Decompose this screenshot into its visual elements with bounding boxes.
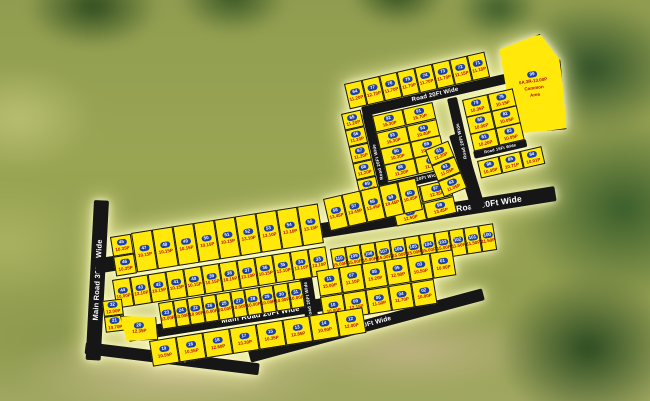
plot: 1410.90P	[309, 311, 340, 341]
plot-size-label: 10.00P	[232, 303, 247, 310]
plot-size-label: 10.15P	[179, 244, 194, 251]
plot: 1910.55P	[149, 337, 180, 367]
plot: 0110.00P	[430, 249, 457, 278]
plot-size-label: 10.15P	[187, 281, 202, 288]
plot: 2012.35P	[120, 313, 158, 343]
plot-size-label: 10.00P	[203, 308, 218, 315]
plot: 1312.85P	[282, 316, 313, 346]
plot-size-label: 13.00P	[160, 315, 175, 322]
plot-size-label: 13.10P	[312, 261, 327, 268]
plot: 1510.35P	[256, 320, 287, 350]
plot-size-label: 10.15P	[138, 251, 153, 258]
land-plot-map-screenshot: Main Road 30FT Wide Main Road 30Ft Wide …	[0, 0, 650, 401]
plot-size-label: 11.50P	[481, 237, 496, 244]
plot-size-label: 13.10P	[283, 228, 298, 235]
plot-number-badge: 99	[527, 71, 538, 78]
plot-size-label: 10.00P	[218, 306, 233, 313]
plot-size-label: 11.50P	[451, 242, 466, 249]
plot-size-label: 12.00P	[106, 308, 121, 315]
plot-size-label: 11.70P	[395, 296, 410, 303]
plot-size-label: 10.15P	[152, 287, 167, 294]
plot-size-label: 10.00P	[275, 297, 290, 304]
plot-size-label: 13.10P	[294, 264, 309, 271]
plot-size-label: 10.15P	[205, 278, 220, 285]
road-main-30ft-left: Main Road 30FT Wide	[86, 200, 109, 361]
plot-size-label: 10.35P	[264, 334, 279, 341]
road-label: Road 20Ft Wide	[304, 281, 314, 318]
plot: 1610.55P	[176, 333, 207, 363]
plot-size-label: 15.20P	[368, 274, 383, 281]
plot-size-label: 10.90P	[317, 326, 332, 333]
plot: 8410.01P	[520, 146, 545, 168]
plot-size-label: 12.90P	[391, 271, 406, 278]
plot-size-label: 13.10P	[241, 234, 256, 241]
plot-size-label: 10.00P	[246, 301, 261, 308]
plot-size-label: 10.00P	[189, 310, 204, 317]
plot: 0210.00P	[411, 279, 438, 307]
plot-size-label: 15.00P	[322, 282, 337, 289]
plot-size-label: 10.55P	[184, 347, 199, 354]
subdivision-map: Main Road 30FT Wide Main Road 30Ft Wide …	[0, 0, 650, 401]
plot: 10011.50P	[478, 223, 497, 252]
plot-size-label: 11.50P	[466, 240, 481, 247]
common-area-label: Area	[530, 91, 541, 98]
plot-size-label: 10.00P	[417, 293, 432, 300]
plot-size-label: 12.00P	[344, 322, 359, 329]
plot-size-label: 12.35P	[132, 328, 147, 334]
plot-size-label: 10.15P	[223, 276, 238, 283]
plot-size-label: 13.10P	[276, 267, 291, 274]
plot-size-label: 10.35P	[118, 265, 133, 272]
plot-size-label: 10.15P	[200, 241, 215, 248]
plot-size-label: 10.15P	[158, 247, 173, 254]
plot-size-label: 13.30P	[237, 339, 252, 346]
common-area-label: Common	[524, 84, 544, 92]
plot-size-label: 10.15P	[170, 284, 185, 291]
plot-size-label: 11.50P	[372, 300, 387, 307]
plot-size-label: 10.15P	[258, 270, 273, 277]
plot-size-label: 12.60P	[211, 343, 226, 350]
plot-size-label: 13.10P	[134, 290, 149, 297]
plot: 4610.35P	[113, 253, 137, 276]
plot-size-label: 10.55P	[157, 351, 172, 358]
plot: 1212.00P	[336, 307, 367, 337]
plot-size-label: 13.10P	[241, 273, 256, 280]
plot: 1713.30P	[229, 324, 260, 354]
road-label: Main Road 30FT Wide	[91, 240, 103, 322]
plot-size-label: 10.35P	[115, 245, 130, 252]
plot-size-label: 10.15P	[221, 238, 236, 245]
plot-size-label: 13.10P	[303, 224, 318, 231]
plot-size-label: 10.00P	[436, 264, 451, 271]
plot-size-label: 10.50P	[413, 267, 428, 274]
plot: 1812.60P	[202, 328, 233, 358]
plot-size-label: 11.10P	[345, 278, 360, 285]
plot-size-label: 10.00P	[261, 299, 276, 306]
plot-size-label: 13.10P	[262, 231, 277, 238]
plot-size-label: 10.00P	[289, 294, 304, 301]
plot-row: 2012.35P	[120, 313, 158, 343]
plot-size-label: 12.85P	[291, 330, 306, 337]
plot-size-label: 10.00P	[175, 312, 190, 319]
